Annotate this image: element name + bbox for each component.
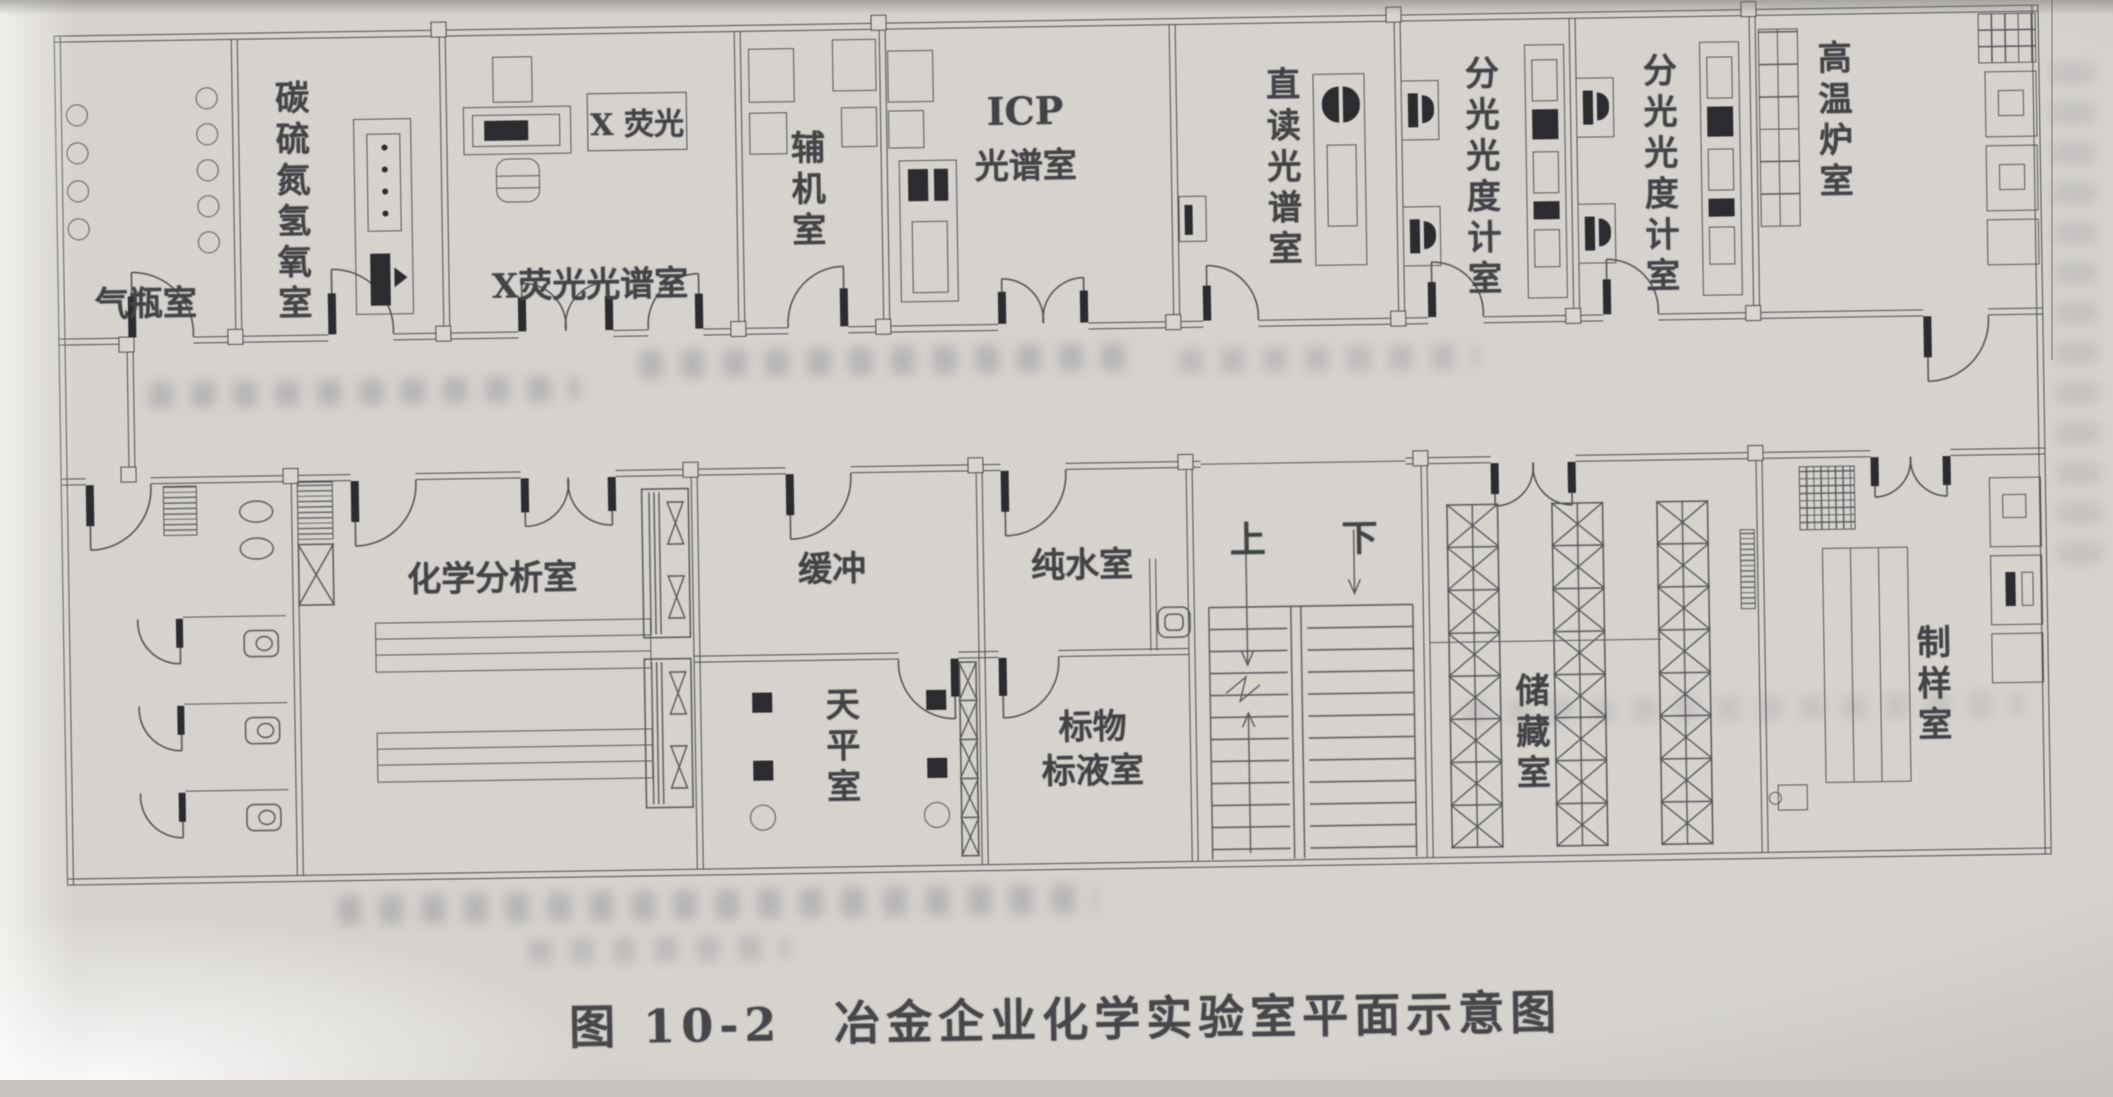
figure-number: 图 10-2 xyxy=(569,997,783,1054)
vent-shaft-x-box xyxy=(298,543,335,606)
wall xyxy=(1950,447,2045,455)
auxiliary-unit xyxy=(841,107,878,148)
sink-icon xyxy=(238,499,274,524)
wall xyxy=(61,478,86,485)
fume-hood-icon xyxy=(644,658,694,809)
page-bleedthrough xyxy=(528,934,788,964)
gas-cylinder-icon xyxy=(197,195,219,217)
column-mark xyxy=(1565,308,1581,324)
shaft-lattice xyxy=(959,661,980,856)
page-bleedthrough xyxy=(2050,44,2102,565)
xrf-machine-body xyxy=(463,106,572,156)
analyzer-cabinet xyxy=(353,118,414,315)
gas-cylinder-icon xyxy=(198,231,220,253)
room-label-gas-cylinder: 气瓶室 xyxy=(70,275,221,326)
machine-inner xyxy=(2021,572,2034,606)
wall xyxy=(1483,314,1603,323)
spectrometer-dark-part xyxy=(1322,87,1340,123)
wall xyxy=(1569,19,1581,315)
xrf-detector-unit xyxy=(496,158,541,203)
machine-bar xyxy=(2005,572,2016,606)
wall xyxy=(1058,648,1188,657)
auxiliary-unit xyxy=(748,48,795,103)
sample-prep-machine xyxy=(1989,477,2042,548)
wall xyxy=(1575,450,1870,462)
sample-prep-machine xyxy=(1990,555,2043,626)
figure-title: 冶金企业化学实验室平面示意图 xyxy=(834,985,1563,1050)
bench-item-dark xyxy=(1532,109,1558,139)
wall xyxy=(67,847,2052,885)
room-label-xrf: X荧光光谱室 xyxy=(442,255,738,309)
gas-cylinder-icon xyxy=(67,180,89,202)
column-mark xyxy=(118,336,134,352)
auxiliary-unit xyxy=(749,112,788,155)
toilet-icon xyxy=(246,803,282,832)
wall xyxy=(1169,25,1181,321)
wall-unit xyxy=(1178,196,1207,242)
room-label-pure-water: 纯水室 xyxy=(992,536,1173,588)
bench-unit xyxy=(1577,203,1616,264)
spectrometer-dark-part xyxy=(1343,86,1361,122)
double-door-arc xyxy=(1870,456,1951,497)
wall xyxy=(616,467,786,477)
wall xyxy=(393,331,518,340)
door-arc xyxy=(86,484,152,550)
furnace-door xyxy=(1999,164,2025,190)
door-arc xyxy=(786,473,852,539)
bench-unit xyxy=(1576,77,1615,138)
wall xyxy=(693,653,898,663)
column-mark xyxy=(1385,7,1401,23)
wall-unit-bar xyxy=(1184,205,1192,235)
door-arc xyxy=(1923,315,1989,381)
lab-bench xyxy=(375,618,652,672)
room-label-standards-line2: 标液室 xyxy=(1005,742,1181,794)
pointer-triangle xyxy=(394,267,407,287)
bench-unit xyxy=(1403,206,1442,267)
column-mark xyxy=(435,325,451,341)
shelf-rack-icon xyxy=(1551,501,1608,847)
column-mark xyxy=(1177,454,1193,470)
indicator-dot xyxy=(382,166,388,172)
furnace-grid-box xyxy=(1978,13,2037,64)
wall xyxy=(1421,464,1434,857)
shelf-rack-icon xyxy=(1656,500,1713,846)
wall xyxy=(291,482,304,875)
furnace-unit xyxy=(1986,145,2039,212)
bench-item xyxy=(1709,226,1736,264)
gas-cylinder-icon xyxy=(195,87,217,109)
wall xyxy=(193,334,328,343)
lab-bench xyxy=(377,728,654,782)
duct-shaft xyxy=(297,481,334,540)
furnace-door xyxy=(1998,90,2024,116)
column-mark xyxy=(875,319,891,335)
room-label-chemical-analysis: 化学分析室 xyxy=(352,549,633,602)
work-bench xyxy=(1822,547,1912,783)
icp-dark-bar xyxy=(934,169,949,201)
room-label-direct-reading: 直读光谱室 xyxy=(1262,66,1299,272)
column-mark xyxy=(227,329,243,345)
toilet-icon xyxy=(243,629,279,658)
column-mark xyxy=(1747,445,1763,461)
wall xyxy=(1756,459,1769,852)
icp-unit xyxy=(887,50,934,103)
page-fold-line xyxy=(2051,0,2053,360)
page-bleedthrough xyxy=(1179,343,1479,374)
duct-shaft xyxy=(1740,529,1756,609)
bench-unit-bar xyxy=(1408,93,1419,127)
stool-icon xyxy=(750,804,776,830)
door-arc xyxy=(351,480,417,546)
wall xyxy=(416,471,521,480)
room-label-buffer: 缓冲 xyxy=(762,540,903,591)
sample-prep-machine xyxy=(1991,633,2044,684)
stall-door-arc xyxy=(138,619,184,665)
toilet-icon xyxy=(244,716,280,745)
stool-icon xyxy=(924,802,950,828)
gas-cylinder-icon xyxy=(66,104,88,126)
room-label-spectrophotometer-2: 分光光度计室 xyxy=(1639,52,1677,299)
column-mark xyxy=(1390,310,1406,326)
double-door-arc xyxy=(998,277,1089,323)
instrument-block xyxy=(370,253,391,305)
gas-cylinder-icon xyxy=(68,218,90,240)
room-label-icp-line2: 光谱室 xyxy=(950,137,1101,188)
column-mark xyxy=(1745,305,1761,321)
scanned-page-photo: X 荧光 xyxy=(0,0,2113,1080)
balance-table xyxy=(752,693,772,713)
gas-cylinder-icon xyxy=(196,123,218,145)
room-label-furnace: 高温炉室 xyxy=(1814,40,1851,205)
wall-bench xyxy=(1699,41,1743,296)
stairs-down-label: 下 xyxy=(1341,509,1378,562)
bench-item xyxy=(1534,229,1561,267)
bench-unit-half-disc xyxy=(1597,92,1609,120)
double-door-arc xyxy=(521,477,617,526)
balance-table xyxy=(753,760,773,780)
xrf-machine-dark-bar xyxy=(484,120,528,141)
bench-item xyxy=(1706,56,1733,98)
duct-shaft xyxy=(163,486,198,537)
sink-icon xyxy=(1157,606,1191,639)
bench-unit-bar xyxy=(1585,217,1596,251)
stall-door-arc xyxy=(139,706,185,752)
balance-table xyxy=(927,758,947,778)
furnace-unit xyxy=(1987,219,2040,266)
icp-unit xyxy=(888,110,925,149)
stall-partition xyxy=(183,615,286,618)
furnace-unit xyxy=(1984,71,2037,138)
floor-plan: X 荧光 xyxy=(0,0,2113,1097)
small-equipment-knob xyxy=(1769,792,1782,805)
spectrometer-cabinet xyxy=(1312,73,1367,266)
wall xyxy=(691,476,704,869)
wall-bench xyxy=(1524,44,1568,299)
room-label-cshno: 碳硫氮氢氧室 xyxy=(271,80,309,327)
column-mark xyxy=(967,457,983,473)
room-label-sample-prep: 制样室 xyxy=(1913,624,1949,748)
column-mark xyxy=(430,22,446,38)
column-mark xyxy=(120,466,136,482)
column-mark xyxy=(1165,314,1181,330)
small-equipment xyxy=(1778,784,1808,810)
room-label-storage: 储藏室 xyxy=(1512,672,1548,796)
stairs xyxy=(1193,464,1420,860)
bench-item xyxy=(1533,151,1560,193)
column-mark xyxy=(1412,450,1428,466)
shelf-rack-icon xyxy=(1446,503,1503,849)
wall xyxy=(231,40,243,336)
wall xyxy=(54,36,74,886)
wall xyxy=(613,329,648,337)
room-label-spectrophotometer-1: 分光光度计室 xyxy=(1461,55,1499,302)
bench-item-dark xyxy=(1708,198,1734,216)
spectrometer-inner xyxy=(1327,144,1358,226)
corridor-partition xyxy=(127,344,136,477)
wall xyxy=(1658,309,1923,320)
bench-item-dark xyxy=(1707,106,1733,136)
wall xyxy=(978,651,998,658)
balance-table xyxy=(926,690,946,710)
room-label-icp-line1: ICP xyxy=(950,87,1101,134)
stall-door-arc xyxy=(141,793,187,839)
double-door-arc xyxy=(1491,462,1577,506)
stairs-up-label: 上 xyxy=(1229,511,1266,564)
wall xyxy=(1988,307,2043,315)
bench-item-dark xyxy=(1533,201,1559,219)
door-arc xyxy=(1001,470,1067,536)
sink-icon xyxy=(239,536,275,561)
analyzer-panel xyxy=(366,133,402,232)
indicator-dot xyxy=(381,144,387,150)
column-mark xyxy=(870,15,886,31)
room-label-auxiliary: 辅机室 xyxy=(787,130,823,254)
auxiliary-unit xyxy=(832,39,877,92)
instrument-tag-label: X 荧光 xyxy=(590,99,684,144)
bench-unit-bar xyxy=(1583,91,1594,125)
machine-inner xyxy=(2002,494,2026,518)
bench-item xyxy=(1531,59,1558,101)
xrf-machine-part xyxy=(492,56,533,103)
bench-unit-bar xyxy=(1410,219,1421,253)
door-arc xyxy=(1202,265,1258,321)
room-label-balance: 天平室 xyxy=(822,686,858,810)
gas-cylinder-icon xyxy=(197,159,219,181)
fume-hood-icon xyxy=(641,488,691,639)
door-arc xyxy=(787,266,848,327)
instrument-tag-box: X 荧光 xyxy=(587,92,688,152)
column-mark xyxy=(1740,1,1756,17)
wall xyxy=(1394,22,1406,318)
column-mark xyxy=(730,321,746,337)
wall xyxy=(958,651,978,658)
indicator-dot xyxy=(382,188,388,194)
column-mark xyxy=(682,462,698,478)
grate-box xyxy=(1799,465,1856,530)
bench-item xyxy=(1708,148,1735,190)
gas-cylinder-icon xyxy=(66,142,88,164)
icp-dark-bar xyxy=(908,169,929,201)
stall-partition xyxy=(186,789,289,792)
wall xyxy=(1088,321,1203,330)
bench-unit-half-disc xyxy=(1599,218,1611,246)
bench-unit-half-disc xyxy=(1424,221,1436,249)
furnace-rack xyxy=(1758,28,1801,227)
wall xyxy=(848,324,998,333)
stall-partition xyxy=(184,702,287,705)
icp-inner-panel xyxy=(912,221,949,294)
bench-unit xyxy=(1401,80,1440,141)
icp-instrument xyxy=(899,160,959,303)
bench-unit-half-disc xyxy=(1422,95,1434,123)
indicator-dot xyxy=(382,210,388,216)
